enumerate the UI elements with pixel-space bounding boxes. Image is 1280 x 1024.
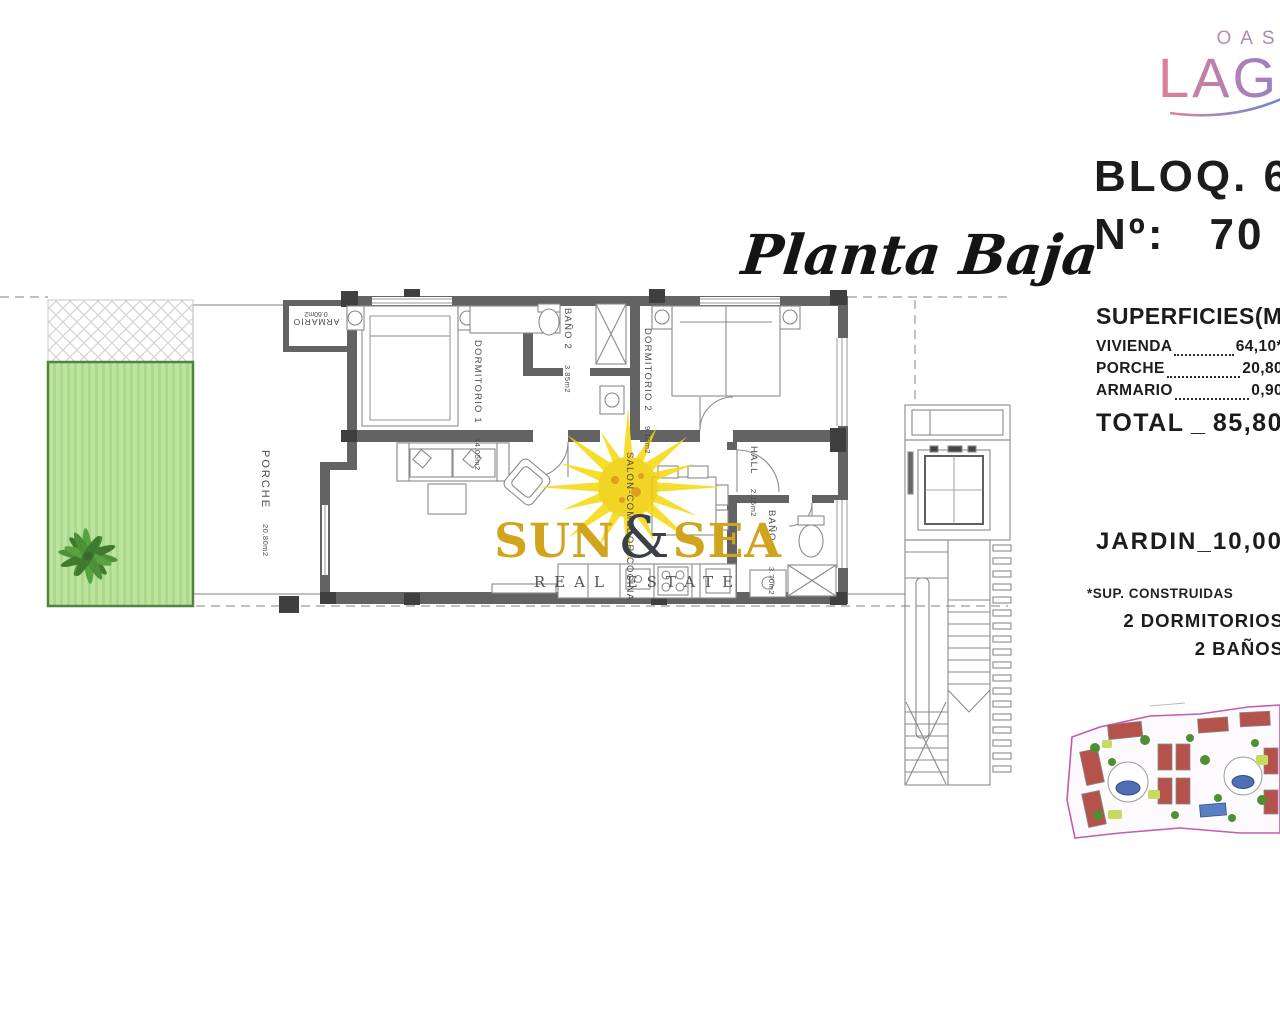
room-label-dormitorio1: DORMITORIO 1 14.05m2 [468,340,486,471]
room-label-porche: PORCHE 20.80m2 [256,450,274,556]
watermark-tagline: REAL ESTATE [533,573,743,591]
stairwell [905,405,1011,785]
watermark: SUN & SEA REAL ESTATE [533,503,743,591]
stair-hatch-strip [993,545,1011,772]
site-plan [1067,703,1280,838]
watermark-sea: SEA [673,514,782,569]
floorplan-page: { "brand": { "oasis": "OASIS", "laguna":… [0,0,1280,1024]
watermark-ampersand: & [618,503,670,571]
garden [48,362,193,606]
logo-swoosh [1170,95,1280,115]
watermark-sun: SUN [494,514,615,569]
room-label-bano2: BAÑO 2 3.85m2 [558,308,576,393]
room-label-dormitorio2: DORMITORIO 2 9.10m2 [638,328,656,454]
room-label-hall: HALL 2.15m2 [744,446,762,517]
room-label-armario: ARMARIO 0.60m2 [290,310,342,327]
hatched-area [48,300,193,362]
